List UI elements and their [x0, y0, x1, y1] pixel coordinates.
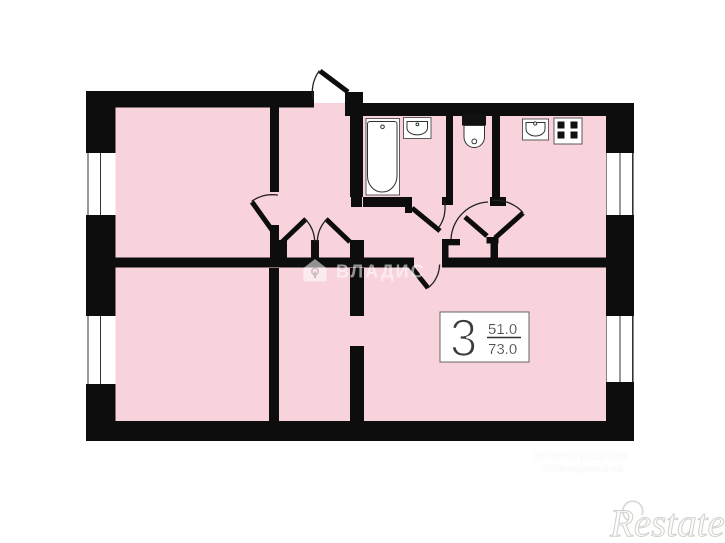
svg-text:ВЛАДИС: ВЛАДИС — [336, 262, 426, 282]
svg-text:Restate: Restate — [609, 502, 725, 543]
svg-text:3: 3 — [450, 308, 477, 367]
svg-text:планировка кв: планировка кв — [543, 461, 623, 475]
svg-text:зеленоградская: зеленоградская — [533, 447, 628, 462]
svg-text:51.0: 51.0 — [488, 321, 517, 338]
svg-text:73.0: 73.0 — [488, 341, 517, 358]
